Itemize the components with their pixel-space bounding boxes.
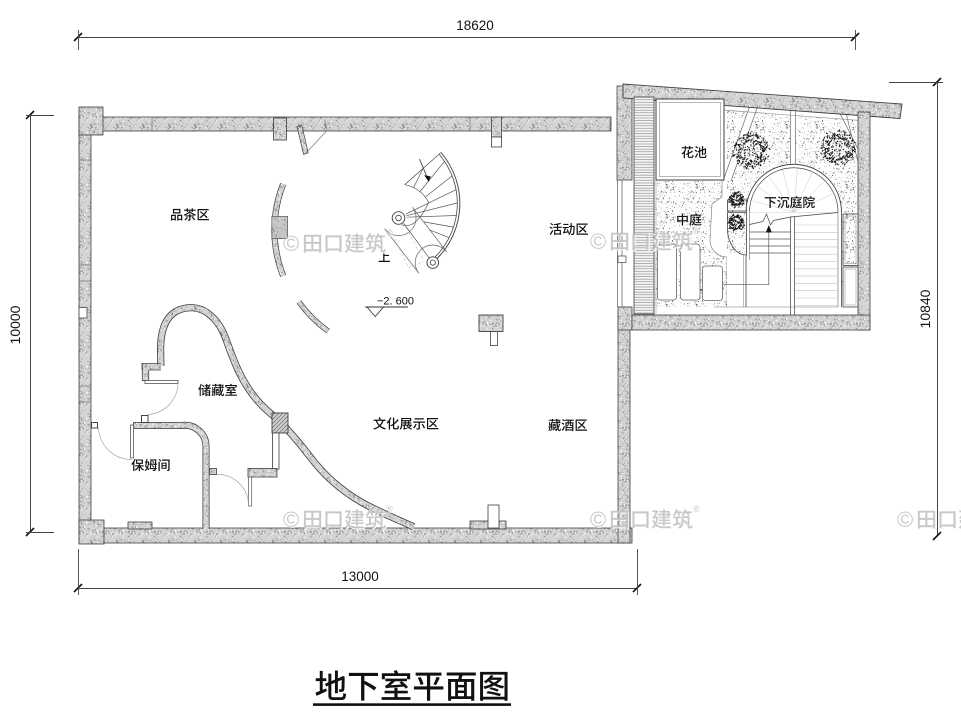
svg-text:18620: 18620 <box>456 18 494 33</box>
svg-text:©: © <box>590 507 606 532</box>
svg-text:©: © <box>590 229 606 254</box>
svg-text:®: ® <box>693 504 700 514</box>
svg-text:10840: 10840 <box>917 289 933 328</box>
svg-text:©: © <box>897 507 913 532</box>
svg-text:®: ® <box>693 226 700 236</box>
svg-text:−2. 600: −2. 600 <box>377 296 414 308</box>
svg-text:10000: 10000 <box>7 305 23 344</box>
svg-text:®: ® <box>386 228 393 238</box>
svg-text:®: ® <box>386 504 393 514</box>
svg-text:©: © <box>283 231 299 256</box>
svg-text:13000: 13000 <box>341 569 379 584</box>
svg-text:©: © <box>283 507 299 532</box>
